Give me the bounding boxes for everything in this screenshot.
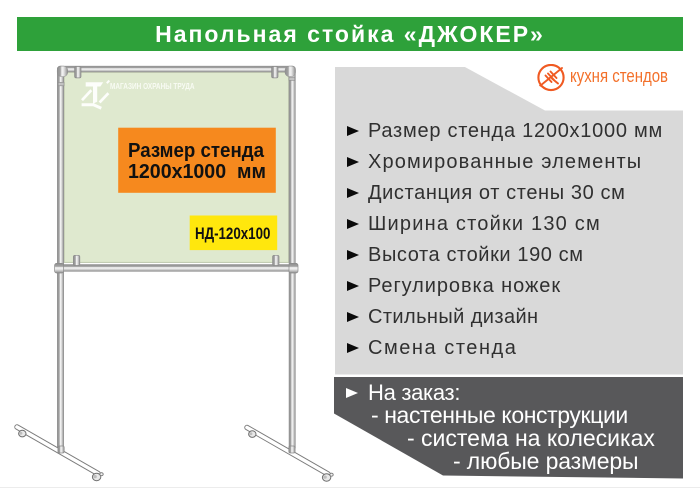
svg-text:кухня стендов: кухня стендов <box>570 66 668 86</box>
svg-text:МАГАЗИН ОХРАНЫ ТРУДА: МАГАЗИН ОХРАНЫ ТРУДА <box>110 81 195 91</box>
svg-text:НД-120х100: НД-120х100 <box>195 225 271 243</box>
svg-text:1200х1000 мм: 1200х1000 мм <box>128 161 266 183</box>
svg-text:Размер стенда: Размер стенда <box>128 140 265 162</box>
